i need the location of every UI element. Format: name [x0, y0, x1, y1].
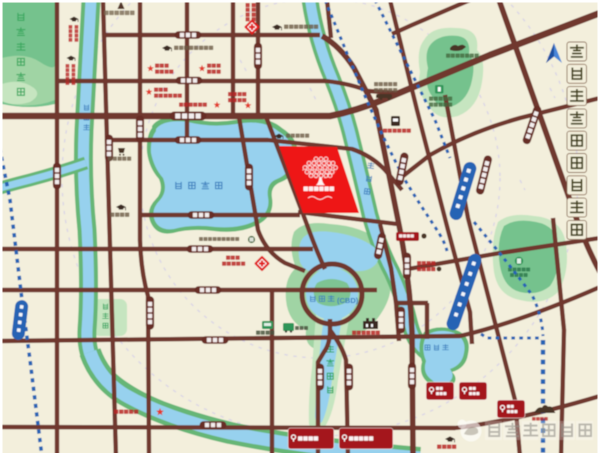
svg-text:(CBD): (CBD): [337, 296, 359, 305]
